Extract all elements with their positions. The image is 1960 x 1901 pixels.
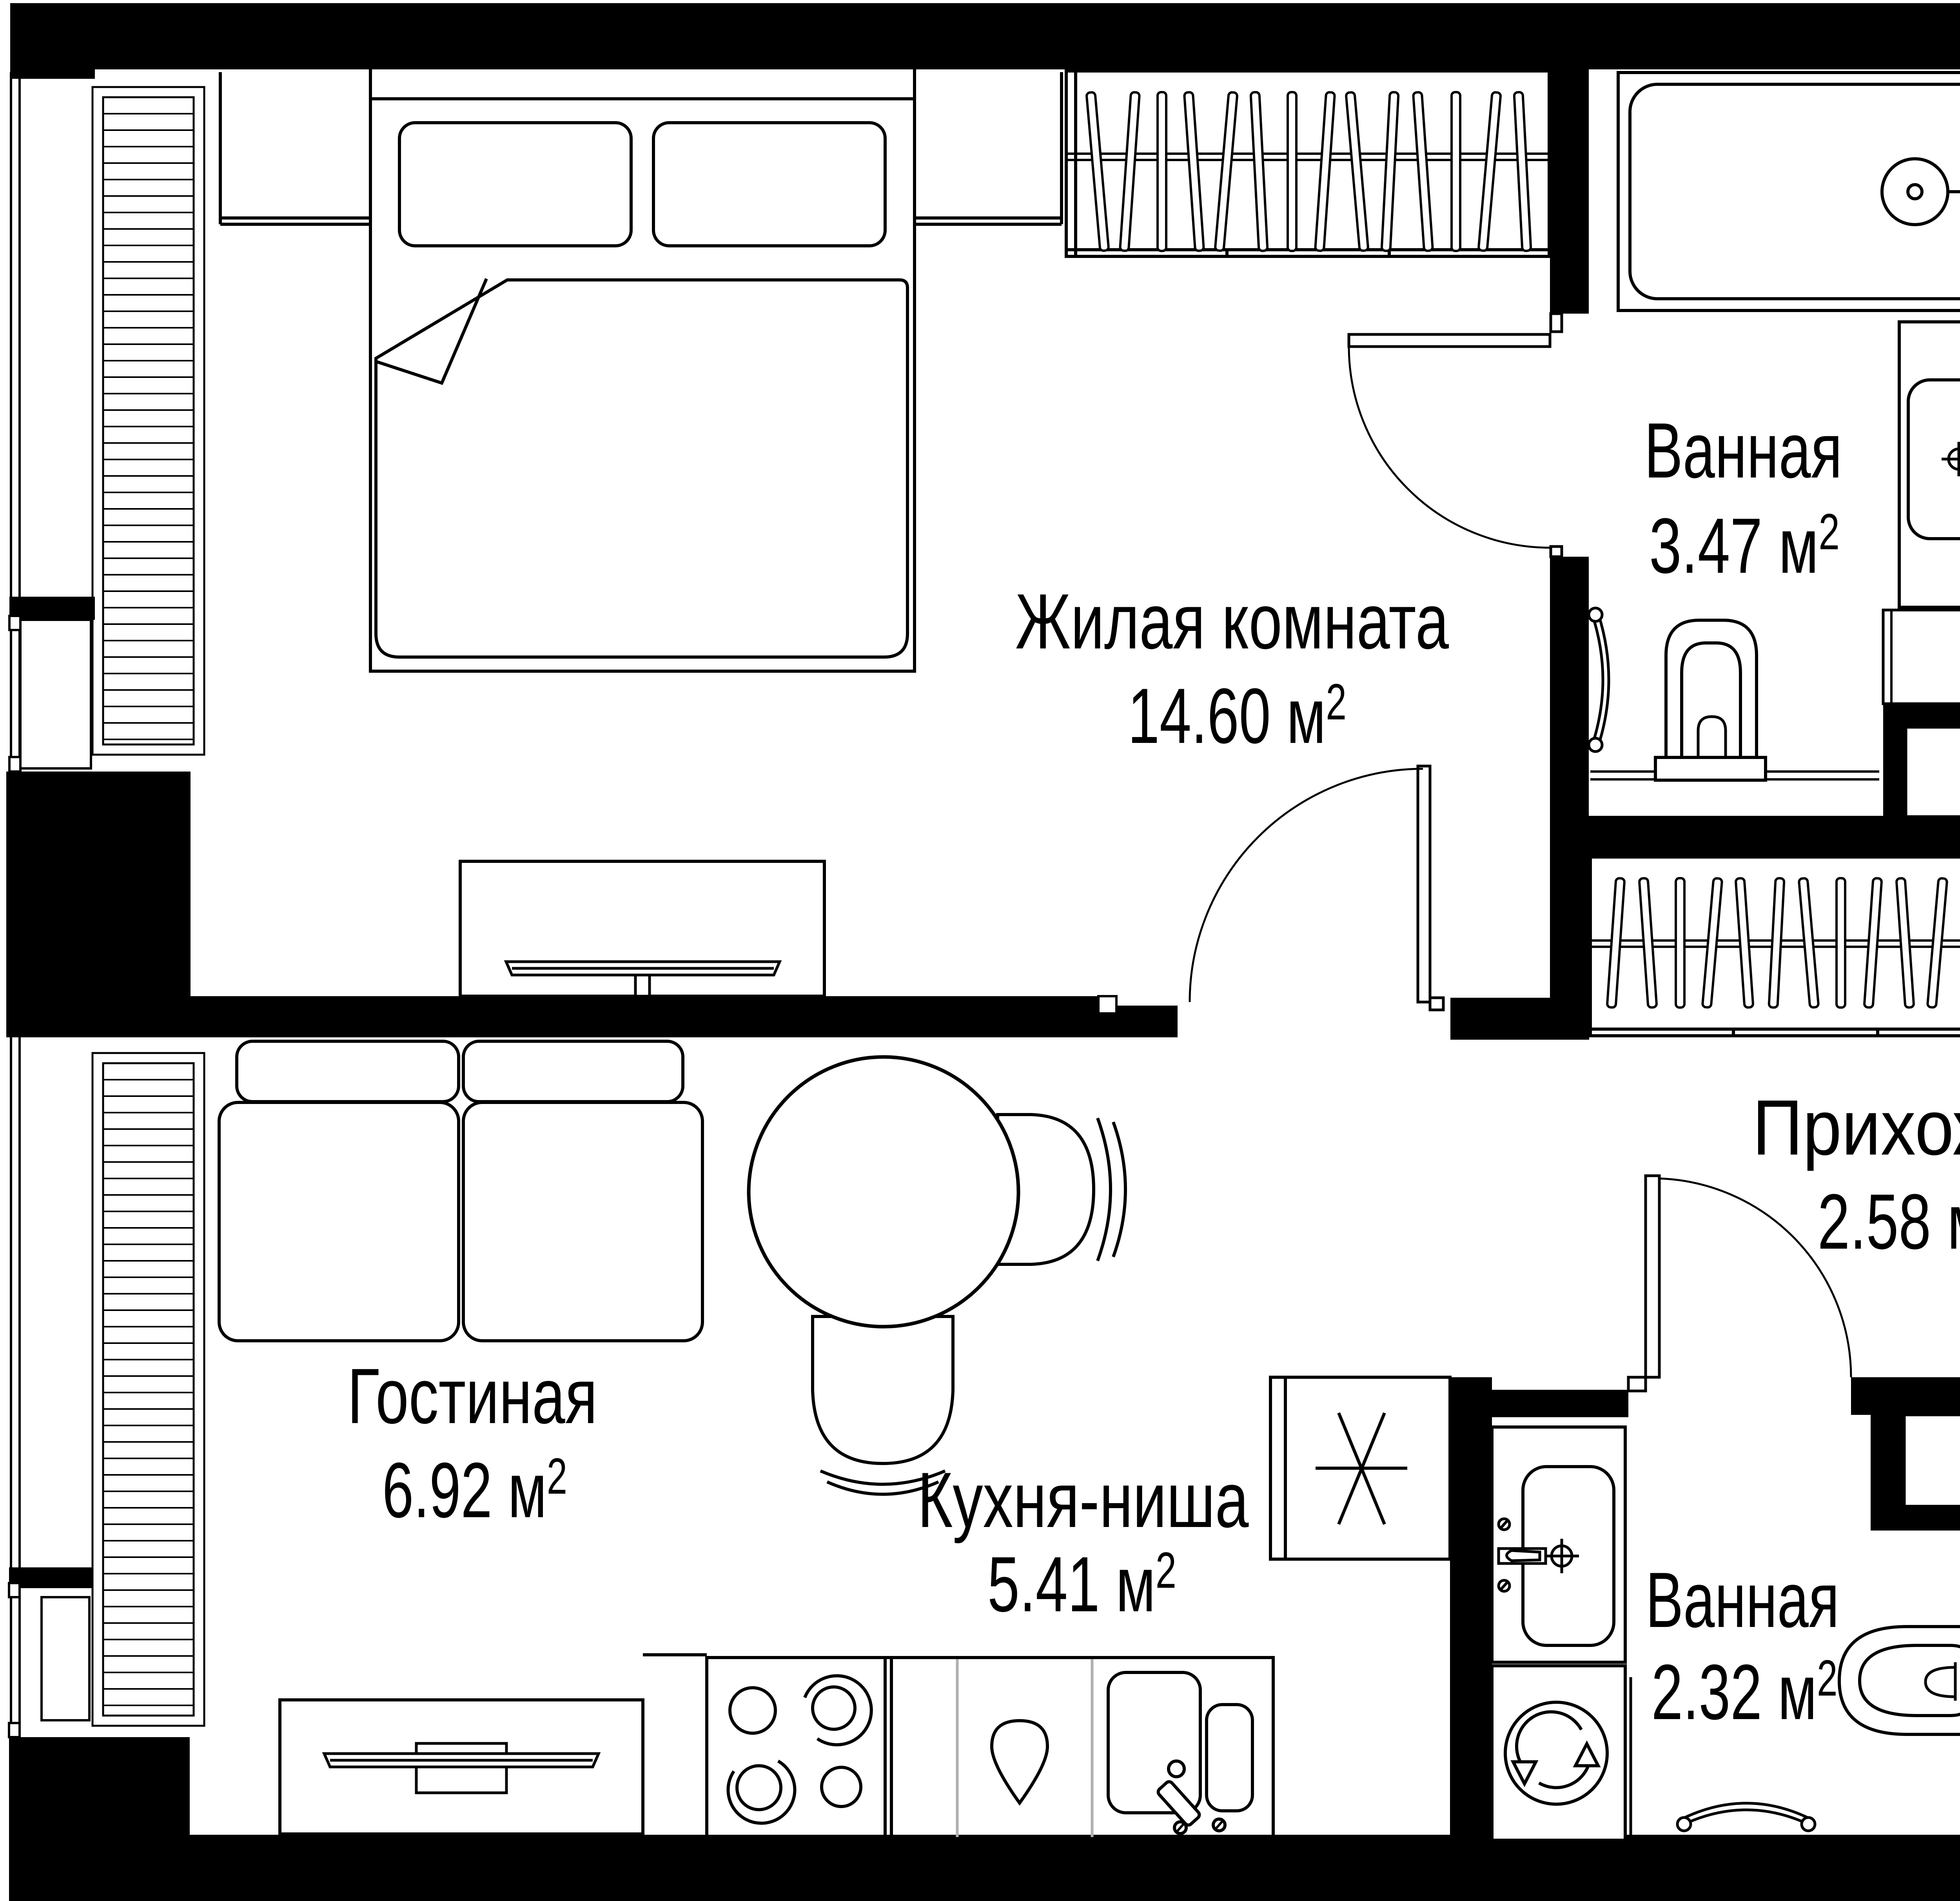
svg-text:Ванная: Ванная bbox=[1646, 1556, 1839, 1644]
svg-text:Гостиная: Гостиная bbox=[347, 1353, 597, 1440]
svg-text:2.32 м2: 2.32 м2 bbox=[1651, 1649, 1838, 1736]
svg-text:Ванная: Ванная bbox=[1644, 407, 1842, 494]
svg-text:Кухня-ниша: Кухня-ниша bbox=[918, 1456, 1249, 1544]
svg-text:Прихожая: Прихожая bbox=[1753, 1084, 1960, 1171]
svg-text:6.92 м2: 6.92 м2 bbox=[382, 1447, 567, 1534]
svg-text:2.58 м2: 2.58 м2 bbox=[1818, 1178, 1960, 1266]
svg-text:Жилая комната: Жилая комната bbox=[1015, 578, 1449, 665]
svg-text:14.60 м2: 14.60 м2 bbox=[1128, 672, 1347, 760]
svg-text:5.41 м2: 5.41 м2 bbox=[987, 1541, 1176, 1628]
svg-text:3.47 м2: 3.47 м2 bbox=[1649, 502, 1840, 590]
